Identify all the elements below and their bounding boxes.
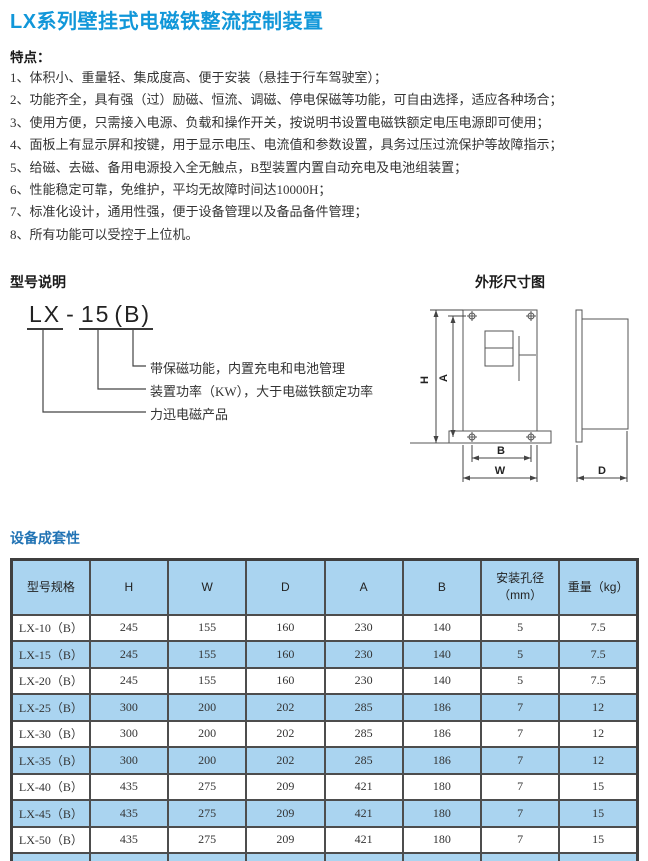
table-row: LX-40（B）435275209421180715 bbox=[12, 774, 638, 801]
table-cell: LX-45（B） bbox=[12, 800, 90, 827]
table-cell: 300 bbox=[90, 747, 168, 774]
dim-D: D bbox=[577, 431, 627, 482]
side-view: D bbox=[576, 310, 628, 482]
table-cell: LX-25（B） bbox=[12, 694, 90, 721]
table-row: LX-10（B）24515516023014057.5 bbox=[12, 615, 638, 642]
table-cell: 15 bbox=[559, 774, 637, 801]
column-header: 重量（kg） bbox=[559, 560, 637, 615]
table-cell: 7 bbox=[481, 721, 559, 748]
table-row: LX-25（B）300200202285186712 bbox=[12, 694, 638, 721]
table-cell: 7 bbox=[481, 800, 559, 827]
table-cell: 186 bbox=[403, 694, 481, 721]
table-cell: 5 bbox=[481, 615, 559, 642]
table-row-partial bbox=[12, 853, 638, 861]
feature-item: 3、使用方便，只需接入电源、负载和操作开关，按说明书设置电磁铁额定电压电源即可使… bbox=[10, 112, 646, 134]
features-list: 1、体积小、重量轻、集成度高、便于安装（悬挂于行车驾驶室）；2、功能齐全，具有强… bbox=[10, 67, 646, 246]
dim-label-B: B bbox=[497, 445, 505, 457]
column-header: B bbox=[403, 560, 481, 615]
table-cell: 186 bbox=[403, 721, 481, 748]
feature-item: 6、性能稳定可靠，免维护，平均无故障时间达10000H； bbox=[10, 179, 646, 201]
table-cell: 7.5 bbox=[559, 641, 637, 668]
table-cell: 300 bbox=[90, 694, 168, 721]
model-callout: 带保磁功能，内置充电和电池管理 bbox=[150, 358, 345, 377]
table-cell: 285 bbox=[325, 747, 403, 774]
table-cell: 7 bbox=[481, 827, 559, 854]
table-cell: 230 bbox=[325, 641, 403, 668]
table-cell bbox=[246, 853, 324, 861]
table-cell: 160 bbox=[246, 668, 324, 695]
table-cell bbox=[481, 853, 559, 861]
table-cell: 285 bbox=[325, 694, 403, 721]
column-header: A bbox=[325, 560, 403, 615]
table-cell: 12 bbox=[559, 721, 637, 748]
table-cell: 230 bbox=[325, 615, 403, 642]
table-cell: 200 bbox=[168, 694, 246, 721]
table-cell: LX-10（B） bbox=[12, 615, 90, 642]
table-cell: LX-15（B） bbox=[12, 641, 90, 668]
table-cell: LX-20（B） bbox=[12, 668, 90, 695]
table-cell: 200 bbox=[168, 721, 246, 748]
feature-item: 2、功能齐全，具有强（过）励磁、恒流、调磁、停电保磁等功能，可自由选择，适应各种… bbox=[10, 89, 646, 111]
feature-item: 5、给磁、去磁、备用电源投入全无触点，B型装置内置自动充电及电池组装置； bbox=[10, 157, 646, 179]
table-cell: 300 bbox=[90, 721, 168, 748]
table-row: LX-30（B）300200202285186712 bbox=[12, 721, 638, 748]
table-cell: LX-40（B） bbox=[12, 774, 90, 801]
model-section-heading: 型号说明 bbox=[10, 272, 66, 292]
spec-table: 型号规格HWDAB安装孔径 （mm）重量（kg） LX-10（B）2451551… bbox=[10, 558, 639, 861]
front-view: H A B W bbox=[410, 310, 551, 482]
table-cell: 209 bbox=[246, 774, 324, 801]
table-cell bbox=[559, 853, 637, 861]
spec-table-body: LX-10（B）24515516023014057.5LX-15（B）24515… bbox=[12, 615, 638, 861]
table-cell: 15 bbox=[559, 827, 637, 854]
table-cell: 202 bbox=[246, 694, 324, 721]
table-cell bbox=[325, 853, 403, 861]
table-cell: 435 bbox=[90, 827, 168, 854]
table-cell: 275 bbox=[168, 800, 246, 827]
table-row: LX-35（B）300200202285186712 bbox=[12, 747, 638, 774]
table-cell: 7.5 bbox=[559, 668, 637, 695]
table-cell: LX-35（B） bbox=[12, 747, 90, 774]
table-cell: 245 bbox=[90, 641, 168, 668]
table-cell: 5 bbox=[481, 641, 559, 668]
model-callout: 力迅电磁产品 bbox=[150, 404, 228, 423]
table-cell: 421 bbox=[325, 800, 403, 827]
dimension-drawing: H A B W bbox=[408, 290, 648, 510]
table-cell: 285 bbox=[325, 721, 403, 748]
table-cell: 209 bbox=[246, 827, 324, 854]
table-cell bbox=[12, 853, 90, 861]
table-cell: 7 bbox=[481, 694, 559, 721]
table-cell: 435 bbox=[90, 800, 168, 827]
table-cell: 155 bbox=[168, 615, 246, 642]
features-heading: 特点： bbox=[10, 46, 51, 66]
column-header: D bbox=[246, 560, 324, 615]
table-cell: 155 bbox=[168, 668, 246, 695]
feature-item: 1、体积小、重量轻、集成度高、便于安装（悬挂于行车驾驶室）； bbox=[10, 67, 646, 89]
feature-item: 8、所有功能可以受控于上位机。 bbox=[10, 224, 646, 246]
spec-table-head: 型号规格HWDAB安装孔径 （mm）重量（kg） bbox=[12, 560, 638, 615]
dim-label-D: D bbox=[598, 465, 606, 477]
table-cell: 12 bbox=[559, 747, 637, 774]
table-cell: 7 bbox=[481, 774, 559, 801]
dim-label-W: W bbox=[495, 465, 506, 477]
table-cell: 421 bbox=[325, 827, 403, 854]
dim-A: A bbox=[438, 316, 466, 437]
table-cell: 5 bbox=[481, 668, 559, 695]
table-cell: LX-50（B） bbox=[12, 827, 90, 854]
display-panel bbox=[485, 331, 536, 381]
table-cell: 230 bbox=[325, 668, 403, 695]
spec-table-heading: 设备成套性 bbox=[10, 528, 80, 548]
table-cell: 180 bbox=[403, 827, 481, 854]
feature-item: 4、面板上有显示屏和按键，用于显示电压、电流值和参数设置，具务过压过流保护等故障… bbox=[10, 134, 646, 156]
table-row: LX-20（B）24515516023014057.5 bbox=[12, 668, 638, 695]
dim-label-H: H bbox=[419, 376, 431, 384]
datasheet-page: LX系列壁挂式电磁铁整流控制装置 特点： 1、体积小、重量轻、集成度高、便于安装… bbox=[0, 0, 648, 861]
table-row: LX-50（B）435275209421180715 bbox=[12, 827, 638, 854]
drawing-heading: 外形尺寸图 bbox=[475, 272, 545, 292]
table-cell: 140 bbox=[403, 668, 481, 695]
table-cell: 155 bbox=[168, 641, 246, 668]
table-cell: 209 bbox=[246, 800, 324, 827]
table-cell: 275 bbox=[168, 827, 246, 854]
column-header: 安装孔径 （mm） bbox=[481, 560, 559, 615]
dim-B: B bbox=[472, 445, 531, 462]
table-cell: 435 bbox=[90, 774, 168, 801]
feature-item: 7、标准化设计，通用性强，便于设备管理以及备品备件管理； bbox=[10, 201, 646, 223]
table-cell: 7.5 bbox=[559, 615, 637, 642]
column-header: W bbox=[168, 560, 246, 615]
table-cell: 200 bbox=[168, 747, 246, 774]
table-header-row: 型号规格HWDAB安装孔径 （mm）重量（kg） bbox=[12, 560, 638, 615]
table-cell: 245 bbox=[90, 615, 168, 642]
table-cell: 202 bbox=[246, 747, 324, 774]
table-cell: 275 bbox=[168, 774, 246, 801]
dim-label-A: A bbox=[438, 374, 450, 382]
table-cell: 15 bbox=[559, 800, 637, 827]
table-cell bbox=[90, 853, 168, 861]
table-cell: 140 bbox=[403, 641, 481, 668]
table-cell: 245 bbox=[90, 668, 168, 695]
table-cell: 186 bbox=[403, 747, 481, 774]
table-cell: 180 bbox=[403, 800, 481, 827]
column-header: H bbox=[90, 560, 168, 615]
table-cell: 421 bbox=[325, 774, 403, 801]
table-cell: 180 bbox=[403, 774, 481, 801]
table-cell bbox=[403, 853, 481, 861]
table-cell: 140 bbox=[403, 615, 481, 642]
table-cell: 202 bbox=[246, 721, 324, 748]
column-header: 型号规格 bbox=[12, 560, 90, 615]
model-callout: 装置功率（KW），大于电磁铁额定功率 bbox=[150, 381, 373, 400]
table-row: LX-45（B）435275209421180715 bbox=[12, 800, 638, 827]
table-cell: 7 bbox=[481, 747, 559, 774]
table-cell: 160 bbox=[246, 641, 324, 668]
table-row: LX-15（B）24515516023014057.5 bbox=[12, 641, 638, 668]
table-cell: 12 bbox=[559, 694, 637, 721]
table-cell: LX-30（B） bbox=[12, 721, 90, 748]
table-cell bbox=[168, 853, 246, 861]
table-cell: 160 bbox=[246, 615, 324, 642]
page-title: LX系列壁挂式电磁铁整流控制装置 bbox=[10, 5, 324, 34]
